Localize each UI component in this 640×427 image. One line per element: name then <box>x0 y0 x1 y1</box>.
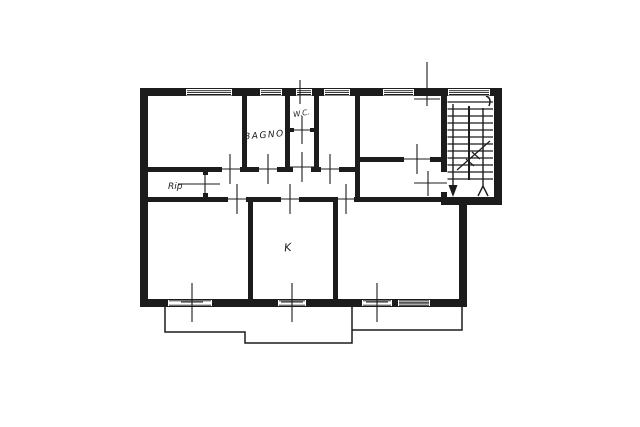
floor-plan-drawing: BAGNO W.C. Rip K <box>0 0 640 427</box>
floor-plan-page: BAGNO W.C. Rip K <box>0 0 640 427</box>
room-label-storage: Rip <box>168 182 183 192</box>
